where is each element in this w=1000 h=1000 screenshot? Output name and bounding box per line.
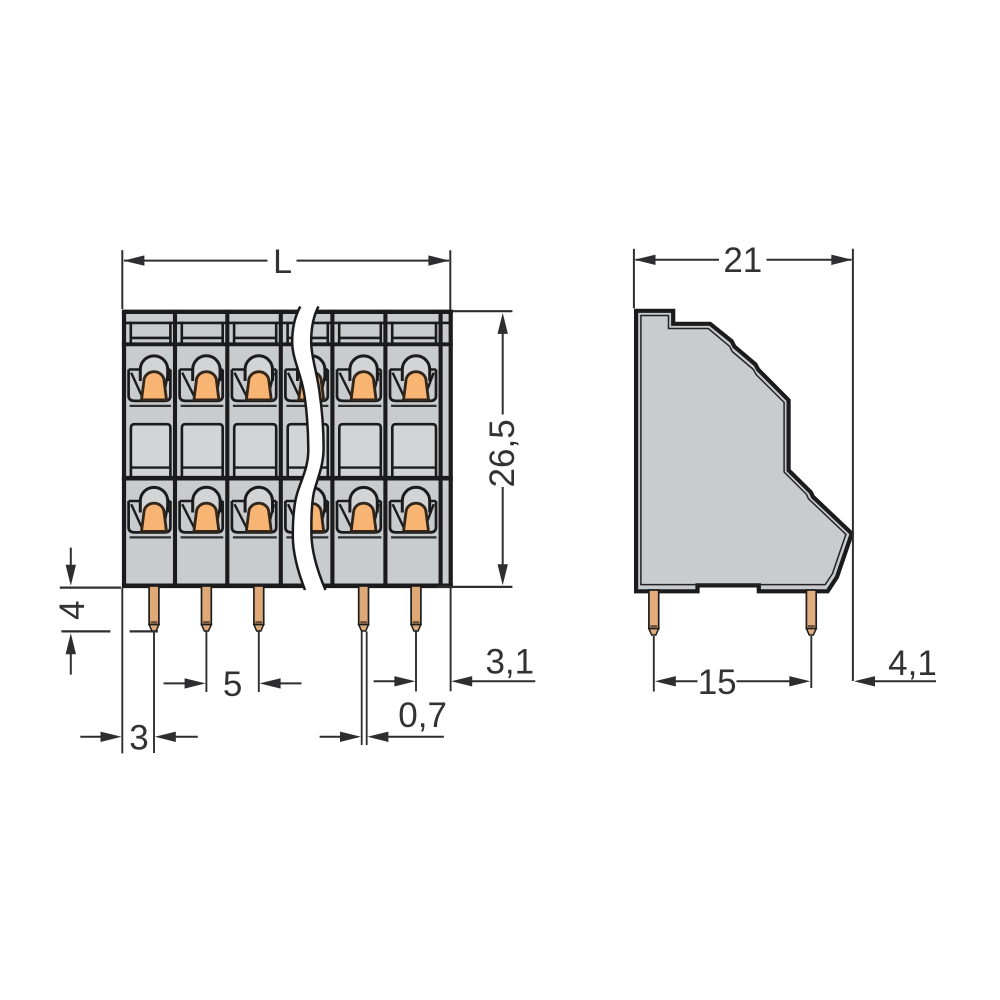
svg-text:15: 15 [698, 663, 737, 702]
svg-text:3,1: 3,1 [485, 643, 534, 682]
svg-text:26,5: 26,5 [483, 419, 522, 487]
svg-text:21: 21 [723, 241, 762, 280]
svg-text:3: 3 [129, 718, 148, 757]
svg-text:4,1: 4,1 [888, 644, 937, 683]
svg-text:5: 5 [223, 665, 242, 704]
svg-text:4: 4 [53, 600, 92, 619]
svg-text:0,7: 0,7 [398, 696, 447, 735]
svg-text:L: L [273, 243, 292, 281]
